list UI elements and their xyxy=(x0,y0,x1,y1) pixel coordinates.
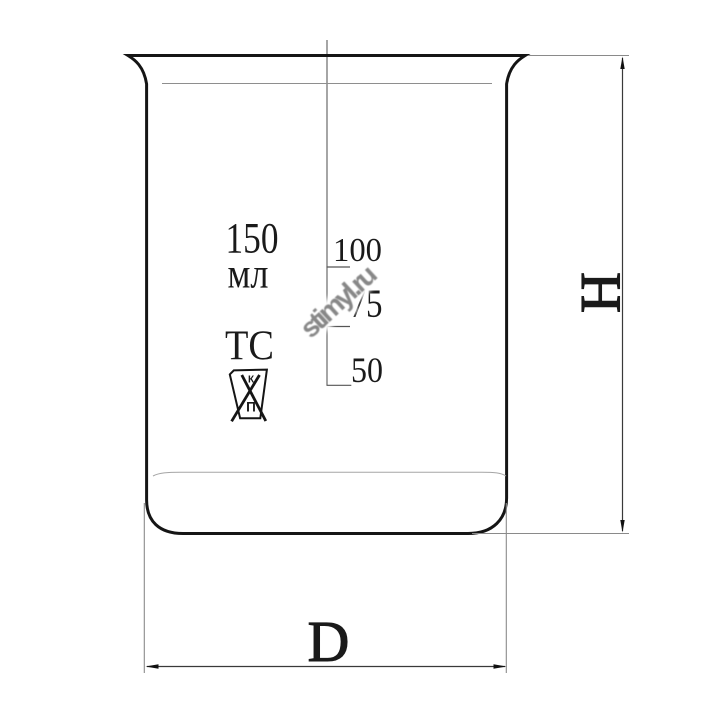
svg-text:D: D xyxy=(308,609,350,674)
svg-text:ТС: ТС xyxy=(225,324,274,370)
svg-text:50: 50 xyxy=(351,350,383,390)
svg-text:П: П xyxy=(246,400,256,415)
svg-text:H: H xyxy=(570,272,633,313)
svg-text:мл: мл xyxy=(228,252,269,298)
svg-text:К: К xyxy=(248,375,255,386)
